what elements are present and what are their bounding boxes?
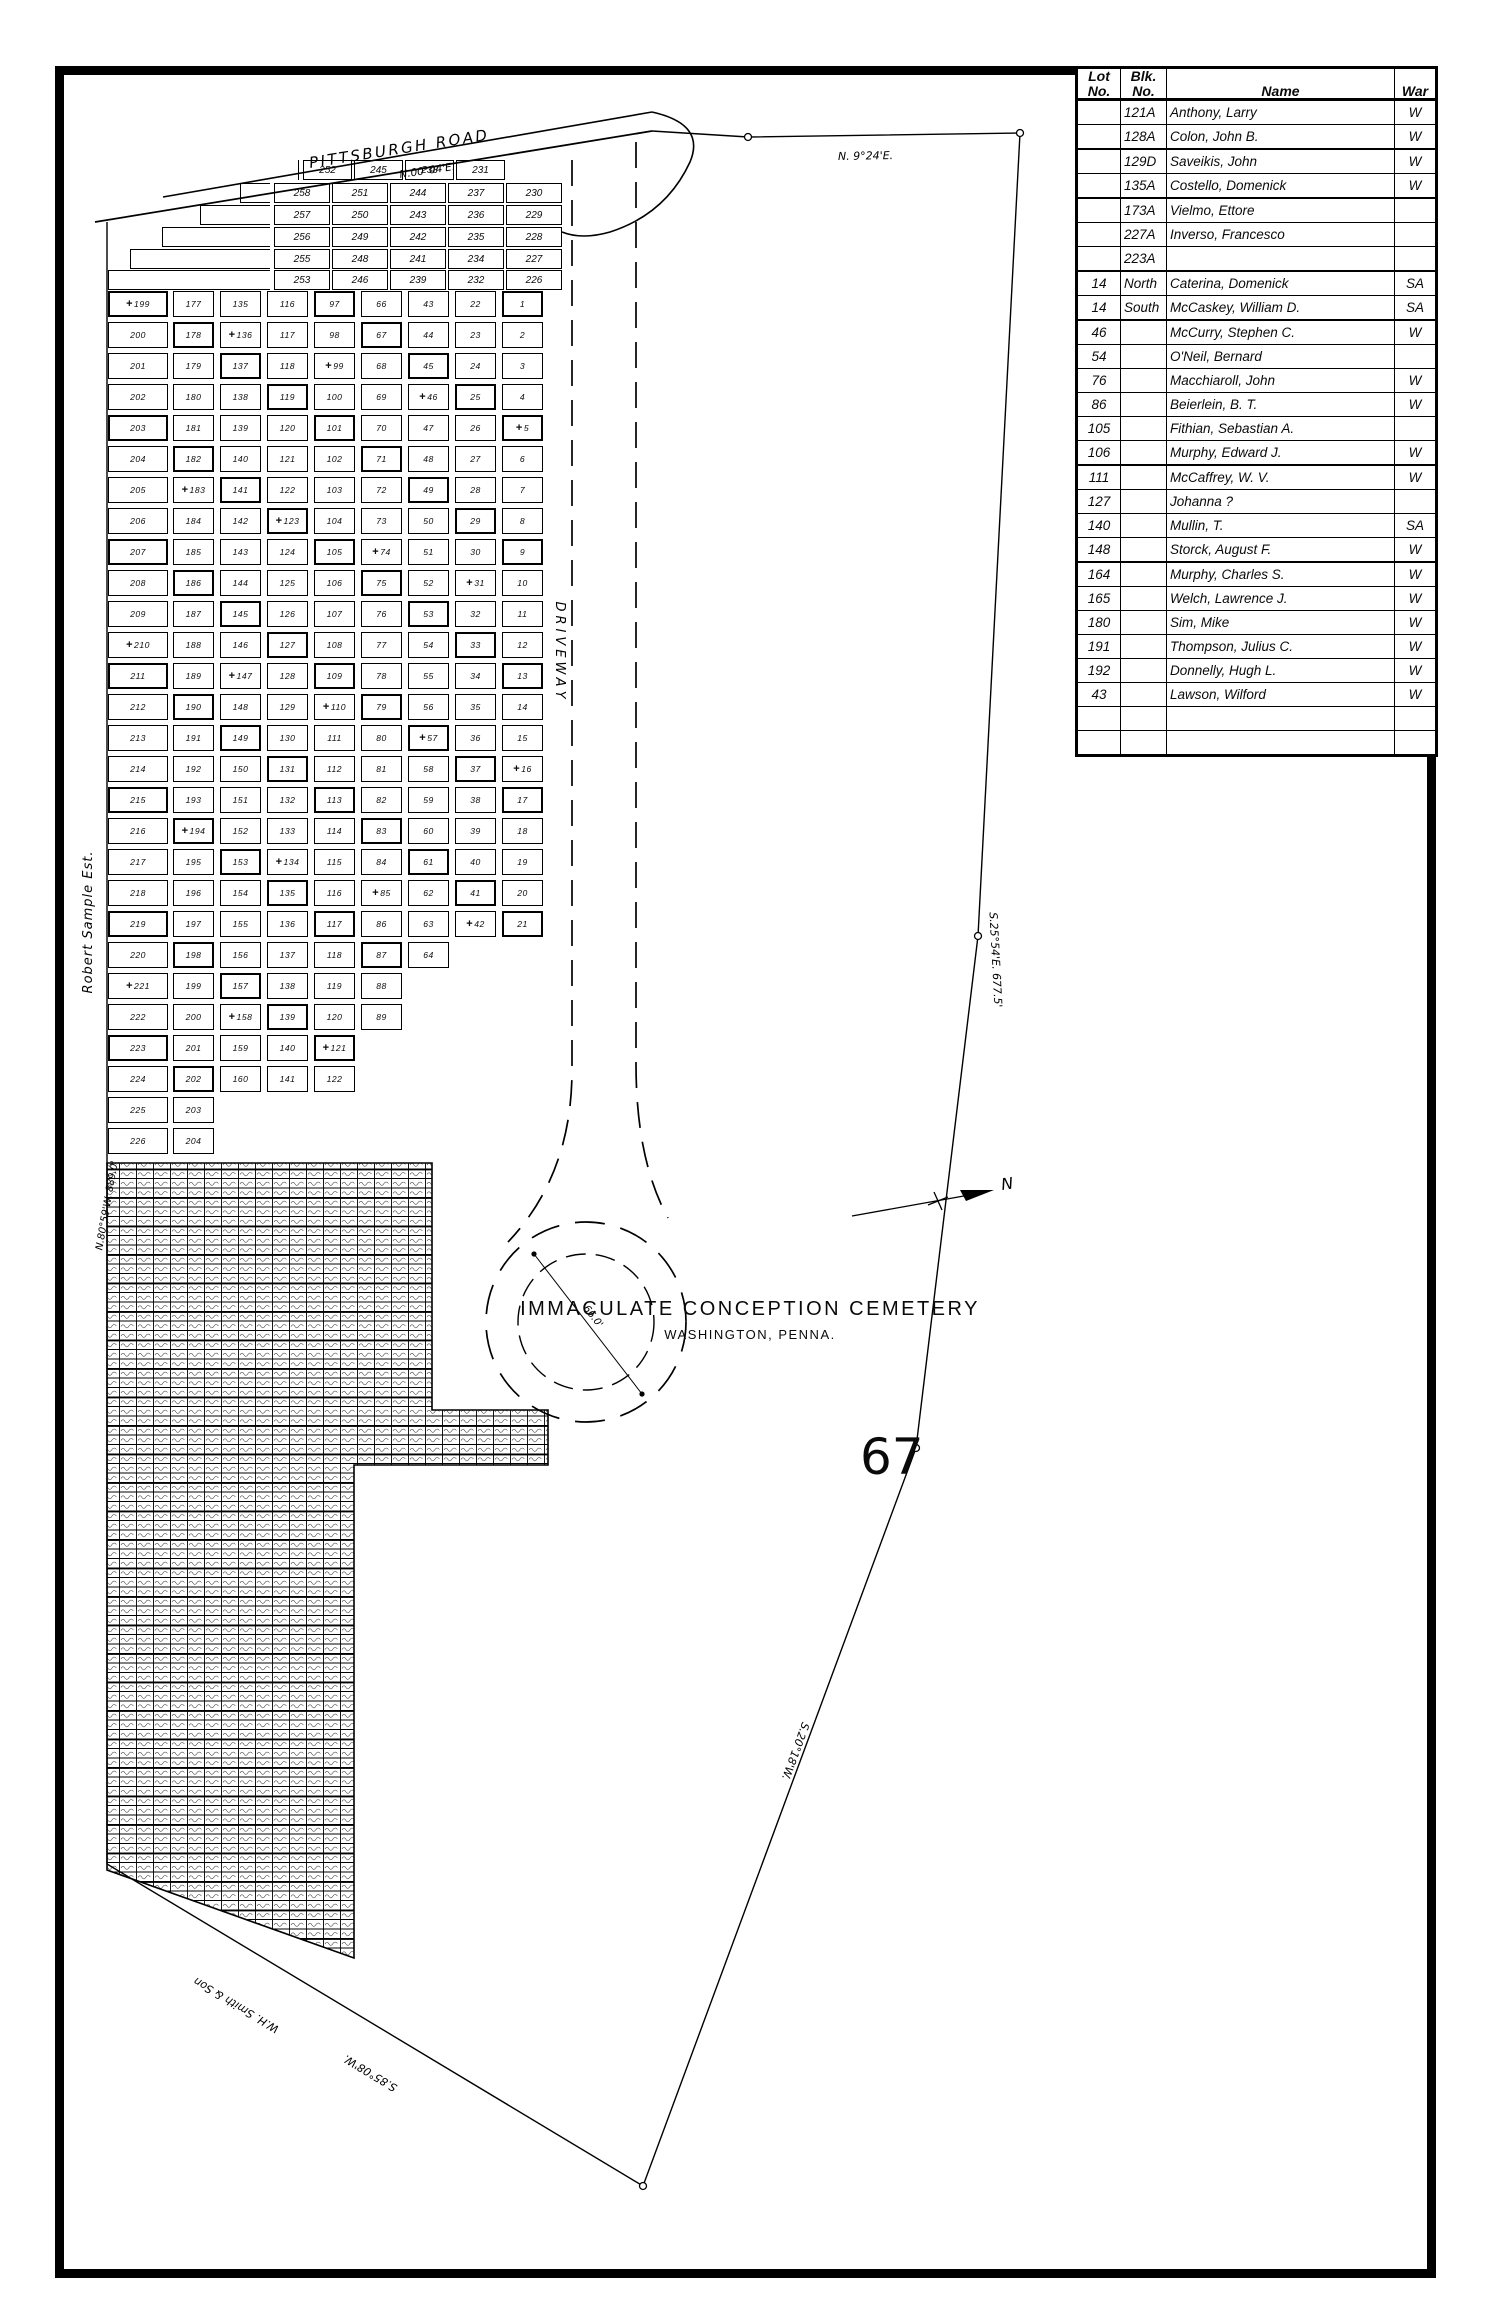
lot-number: 222 <box>130 1012 146 1022</box>
lot-number: 84 <box>376 857 387 867</box>
burial-list-table: Lot No. Blk. No. Name War 121AAnthony, L… <box>1075 66 1438 757</box>
grave-war-cell: SA <box>1395 514 1437 538</box>
grave-war-cell: W <box>1395 683 1437 707</box>
lot-cell: 113 <box>314 787 355 813</box>
lot-number: 11 <box>518 609 528 619</box>
lot-cell: 139 <box>220 415 261 441</box>
lot-cell: 116 <box>267 291 308 317</box>
grave-table-row: 14SouthMcCaskey, William D.SA <box>1077 296 1437 321</box>
lot-cell: +136 <box>220 322 261 348</box>
lot-cell: 56 <box>408 694 449 720</box>
grave-table-row: 129DSaveikis, JohnW <box>1077 149 1437 174</box>
lot-cell: 159 <box>220 1035 261 1061</box>
lot-cell: 120 <box>314 1004 355 1030</box>
lot-cell: 54 <box>408 632 449 658</box>
lot-number: 143 <box>233 547 249 557</box>
strip-lot-cell: 253 <box>274 270 330 290</box>
grave-lot-cell: 127 <box>1077 490 1121 514</box>
lot-number: 20 <box>517 888 528 898</box>
grave-lot-cell <box>1077 223 1121 247</box>
lot-number: 150 <box>233 764 249 774</box>
grave-lot-cell: 192 <box>1077 659 1121 683</box>
lot-number: 211 <box>130 671 145 681</box>
lot-cell: 124 <box>267 539 308 565</box>
lot-number: 217 <box>130 857 146 867</box>
lot-number: 151 <box>233 795 249 805</box>
grave-war-cell: W <box>1395 562 1437 587</box>
lot-cell: 80 <box>361 725 402 751</box>
lot-cell: 38 <box>455 787 496 813</box>
lot-number: 78 <box>376 671 387 681</box>
map-subtitle: WASHINGTON, PENNA. <box>450 1327 1050 1342</box>
grave-name-cell <box>1167 707 1395 731</box>
grave-war-cell: W <box>1395 587 1437 611</box>
strip-lot-cell: 256 <box>274 227 330 247</box>
lot-cell: 193 <box>173 787 214 813</box>
lot-number: 8 <box>520 516 525 526</box>
lot-cell: +31 <box>455 570 496 596</box>
lot-cell: 191 <box>173 725 214 751</box>
lot-number: 119 <box>280 392 295 402</box>
grave-cross-mark: + <box>325 360 332 372</box>
lot-cell: 48 <box>408 446 449 472</box>
lot-number: 74 <box>380 547 391 557</box>
lot-cell: 201 <box>108 353 168 379</box>
lot-number: 69 <box>376 392 387 402</box>
lot-cell: 18 <box>502 818 543 844</box>
lot-cell: 201 <box>173 1035 214 1061</box>
lot-cell: 68 <box>361 353 402 379</box>
road-lot-strip: 256249242235228 <box>162 227 562 247</box>
grave-blk-cell <box>1121 731 1167 756</box>
grave-cross-mark: + <box>323 701 330 713</box>
lot-number: 73 <box>376 516 387 526</box>
lot-number: 101 <box>327 423 343 433</box>
grave-cross-mark: + <box>372 887 379 899</box>
lot-cell: 179 <box>173 353 214 379</box>
lot-cell: 84 <box>361 849 402 875</box>
grave-lot-cell: 54 <box>1077 345 1121 369</box>
grave-cross-mark: + <box>276 515 283 527</box>
lot-cell: 37 <box>455 756 496 782</box>
dense-plot-blocks <box>107 1163 548 1958</box>
grave-war-cell: W <box>1395 441 1437 466</box>
lot-number: 60 <box>423 826 434 836</box>
lot-number: 155 <box>233 919 249 929</box>
lot-number: 159 <box>233 1043 249 1053</box>
strip-lot-cell: 238 <box>405 160 454 180</box>
lot-number: 203 <box>186 1105 202 1115</box>
lot-number: 48 <box>423 454 434 464</box>
grave-lot-cell: 106 <box>1077 441 1121 466</box>
lot-cell: 13 <box>502 663 543 689</box>
lot-number: 139 <box>280 1012 296 1022</box>
lot-number: 148 <box>233 702 249 712</box>
lot-cell: +158 <box>220 1004 261 1030</box>
lot-cell: 203 <box>108 415 168 441</box>
lot-number: 22 <box>470 299 481 309</box>
lot-number: 71 <box>376 454 387 464</box>
diameter-end-dot <box>531 1251 536 1256</box>
lot-number: 183 <box>190 485 206 495</box>
grave-lot-cell <box>1077 174 1121 199</box>
page-number: 67 <box>860 1428 980 1486</box>
lot-cell: 97 <box>314 291 355 317</box>
road-lot-strip: 258251244237230 <box>240 183 562 203</box>
grave-blk-cell <box>1121 320 1167 345</box>
lot-cell: +221 <box>108 973 168 999</box>
lot-cell: 81 <box>361 756 402 782</box>
lot-cell: 203 <box>173 1097 214 1123</box>
lot-cell: 195 <box>173 849 214 875</box>
lot-number: 109 <box>327 671 343 681</box>
lot-cell: 189 <box>173 663 214 689</box>
strip-lot-cell: 235 <box>448 227 504 247</box>
lot-number: 108 <box>327 640 343 650</box>
lot-cell: 182 <box>173 446 214 472</box>
bottom-bearing-label: S.85°08'W. <box>341 2052 400 2094</box>
lot-number: 127 <box>280 640 296 650</box>
lot-cell: 33 <box>455 632 496 658</box>
lot-cell: 100 <box>314 384 355 410</box>
west-estate-label: Robert Sample Est. <box>81 851 96 994</box>
grave-war-cell <box>1395 490 1437 514</box>
lot-cell: 130 <box>267 725 308 751</box>
lot-number: 45 <box>423 361 434 371</box>
lot-number: 1 <box>520 299 525 309</box>
grave-table-row: 106Murphy, Edward J.W <box>1077 441 1437 466</box>
lot-number: 57 <box>427 733 438 743</box>
grave-table-row <box>1077 707 1437 731</box>
lot-number: 18 <box>517 826 528 836</box>
lot-number: 67 <box>376 330 387 340</box>
grave-name-cell: Lawson, Wilford <box>1167 683 1395 707</box>
strip-lot-cell: 241 <box>390 249 446 269</box>
lot-number: 123 <box>284 516 300 526</box>
lot-cell: 190 <box>173 694 214 720</box>
lot-number: 103 <box>327 485 343 495</box>
lot-number: 179 <box>186 361 202 371</box>
lot-cell: 8 <box>502 508 543 534</box>
lot-number: 12 <box>517 640 528 650</box>
lot-cell: 150 <box>220 756 261 782</box>
lot-cell: 219 <box>108 911 168 937</box>
lot-number: 102 <box>327 454 343 464</box>
lot-cell: 112 <box>314 756 355 782</box>
lot-cell: 53 <box>408 601 449 627</box>
north-label: N <box>1000 1173 1015 1193</box>
grave-cross-mark: + <box>516 422 523 434</box>
lot-number: 204 <box>186 1136 202 1146</box>
lot-cell: 133 <box>267 818 308 844</box>
grave-blk-cell <box>1121 659 1167 683</box>
lot-number: 186 <box>186 578 202 588</box>
grave-table-row: 121AAnthony, LarryW <box>1077 100 1437 125</box>
strip-lot-cell: 246 <box>332 270 388 290</box>
lot-cell: 204 <box>173 1128 214 1154</box>
lot-number: 121 <box>280 454 296 464</box>
lot-number: 79 <box>376 702 387 712</box>
lot-number: 187 <box>186 609 202 619</box>
lot-number: 225 <box>130 1105 146 1115</box>
lot-cell: 200 <box>108 322 168 348</box>
lot-number: 51 <box>423 547 434 557</box>
lot-cell: 143 <box>220 539 261 565</box>
grave-blk-cell <box>1121 562 1167 587</box>
lot-cell: 218 <box>108 880 168 906</box>
grave-war-cell <box>1395 223 1437 247</box>
grave-name-cell: Saveikis, John <box>1167 149 1395 174</box>
lot-cell: +183 <box>173 477 214 503</box>
lot-number: 114 <box>327 826 342 836</box>
grave-war-cell: W <box>1395 465 1437 490</box>
lot-cell: 52 <box>408 570 449 596</box>
lot-cell: 103 <box>314 477 355 503</box>
lot-cell: 69 <box>361 384 402 410</box>
lot-cell: +5 <box>502 415 543 441</box>
lot-cell: 132 <box>267 787 308 813</box>
lot-number: 145 <box>233 609 249 619</box>
grave-name-cell <box>1167 247 1395 272</box>
lot-number: 66 <box>376 299 387 309</box>
lot-number: 64 <box>423 950 434 960</box>
lot-number: 16 <box>521 764 532 774</box>
lot-cell: 120 <box>267 415 308 441</box>
grave-lot-cell: 14 <box>1077 271 1121 296</box>
grave-table-row: 165Welch, Lawrence J.W <box>1077 587 1437 611</box>
lot-number: 138 <box>280 981 296 991</box>
lot-cell: 126 <box>267 601 308 627</box>
lot-number: 178 <box>186 330 202 340</box>
grave-blk-cell: North <box>1121 271 1167 296</box>
lot-cell: 224 <box>108 1066 168 1092</box>
lot-cell: 202 <box>108 384 168 410</box>
lot-cell: 39 <box>455 818 496 844</box>
lot-cell: +99 <box>314 353 355 379</box>
grave-cross-mark: + <box>229 1011 236 1023</box>
grave-blk-cell: 135A <box>1121 174 1167 199</box>
grave-blk-cell <box>1121 441 1167 466</box>
lot-number: 52 <box>423 578 434 588</box>
strip-lot-cell: 258 <box>274 183 330 203</box>
strip-lot-cell: 242 <box>390 227 446 247</box>
lot-number: 200 <box>130 330 146 340</box>
lot-cell: 101 <box>314 415 355 441</box>
lot-cell: 196 <box>173 880 214 906</box>
lot-cell: 23 <box>455 322 496 348</box>
grave-name-cell: Donnelly, Hugh L. <box>1167 659 1395 683</box>
road-lot-strip: 252245238231 <box>298 160 505 180</box>
grave-blk-cell: South <box>1121 296 1167 321</box>
grave-cross-mark: + <box>276 856 283 868</box>
lot-cell: 198 <box>173 942 214 968</box>
grave-cross-mark: + <box>126 298 133 310</box>
lot-number: 62 <box>423 888 434 898</box>
lot-cell: 76 <box>361 601 402 627</box>
lot-number: 3 <box>520 361 525 371</box>
grave-name-cell: Anthony, Larry <box>1167 100 1395 125</box>
grave-name-cell <box>1167 731 1395 756</box>
lot-cell: 3 <box>502 353 543 379</box>
lot-cell: 115 <box>314 849 355 875</box>
grave-name-cell: Murphy, Charles S. <box>1167 562 1395 587</box>
lot-cell: +42 <box>455 911 496 937</box>
lot-cell: 28 <box>455 477 496 503</box>
lot-number: 76 <box>376 609 387 619</box>
boundary-corner-markers <box>640 130 1024 2190</box>
lot-number: 30 <box>470 547 481 557</box>
lot-number: 117 <box>280 330 295 340</box>
north-arrow <box>852 1190 994 1216</box>
lot-cell: 34 <box>455 663 496 689</box>
strip-lot-cell: 229 <box>506 205 562 225</box>
lot-number: 83 <box>376 826 387 836</box>
lot-number: 200 <box>186 1012 202 1022</box>
lot-number: 53 <box>423 609 434 619</box>
lot-number: 216 <box>130 826 146 836</box>
top-bearing-label: N. 9°24'E. <box>838 149 893 163</box>
lot-cell: 55 <box>408 663 449 689</box>
grave-war-cell: W <box>1395 149 1437 174</box>
lot-number: 188 <box>186 640 202 650</box>
lot-cell: 122 <box>314 1066 355 1092</box>
lot-cell: 209 <box>108 601 168 627</box>
lot-number: 29 <box>470 516 481 526</box>
strip-lot-cell: 232 <box>448 270 504 290</box>
lot-number: 199 <box>186 981 202 991</box>
grave-blk-cell: 129D <box>1121 149 1167 174</box>
grave-table-row: 127Johanna ? <box>1077 490 1437 514</box>
lot-cell: 1 <box>502 291 543 317</box>
lot-number: 137 <box>233 361 249 371</box>
lot-cell: +134 <box>267 849 308 875</box>
lot-cell: 140 <box>267 1035 308 1061</box>
lot-cell: 78 <box>361 663 402 689</box>
lot-cell: 32 <box>455 601 496 627</box>
lot-cell: 62 <box>408 880 449 906</box>
lot-cell: 6 <box>502 446 543 472</box>
lot-number: 41 <box>470 888 481 898</box>
lot-number: 120 <box>327 1012 343 1022</box>
lot-number: 55 <box>423 671 434 681</box>
grave-cross-mark: + <box>323 1042 330 1054</box>
lot-number: 35 <box>470 702 481 712</box>
grave-lot-cell <box>1077 198 1121 223</box>
lot-cell: 140 <box>220 446 261 472</box>
lot-cell: 127 <box>267 632 308 658</box>
lot-number: 115 <box>327 857 342 867</box>
lot-number: 31 <box>474 578 485 588</box>
grave-blk-cell: 223A <box>1121 247 1167 272</box>
lot-number: 213 <box>130 733 146 743</box>
grave-lot-cell: 43 <box>1077 683 1121 707</box>
lot-cell: 60 <box>408 818 449 844</box>
grave-war-cell <box>1395 345 1437 369</box>
lot-cell: 4 <box>502 384 543 410</box>
lot-number: 136 <box>280 919 296 929</box>
lot-number: 119 <box>327 981 342 991</box>
lot-cell: 122 <box>267 477 308 503</box>
lot-number: 116 <box>327 888 342 898</box>
grave-name-cell: Storck, August F. <box>1167 538 1395 563</box>
grave-blk-cell <box>1121 538 1167 563</box>
lot-number: 82 <box>376 795 387 805</box>
lot-cell: 79 <box>361 694 402 720</box>
lot-cell: 154 <box>220 880 261 906</box>
grave-table-row: 227AInverso, Francesco <box>1077 223 1437 247</box>
lot-number: 160 <box>233 1074 249 1084</box>
lot-number: 97 <box>329 299 340 309</box>
lot-cell: 197 <box>173 911 214 937</box>
lot-number: 136 <box>237 330 253 340</box>
lot-cell: 181 <box>173 415 214 441</box>
grave-blk-cell <box>1121 514 1167 538</box>
lot-cell: 155 <box>220 911 261 937</box>
lot-cell: 125 <box>267 570 308 596</box>
grave-blk-cell <box>1121 393 1167 417</box>
lot-cell: 160 <box>220 1066 261 1092</box>
lot-cell: +121 <box>314 1035 355 1061</box>
lot-number: 40 <box>470 857 481 867</box>
lot-cell: 226 <box>108 1128 168 1154</box>
grave-war-cell: W <box>1395 174 1437 199</box>
strip-lot-cell: 255 <box>274 249 330 269</box>
lot-number: 70 <box>376 423 387 433</box>
grave-name-cell: Thompson, Julius C. <box>1167 635 1395 659</box>
strip-lot-cell: 251 <box>332 183 388 203</box>
burial-table-header-row: Lot No. Blk. No. Name War <box>1077 68 1437 100</box>
lot-number: 112 <box>327 764 342 774</box>
lot-cell: 131 <box>267 756 308 782</box>
grave-war-cell: W <box>1395 369 1437 393</box>
lot-cell: 9 <box>502 539 543 565</box>
lot-cell: 116 <box>314 880 355 906</box>
lot-cell: 51 <box>408 539 449 565</box>
lot-number: 212 <box>130 702 146 712</box>
grave-table-row: 148Storck, August F.W <box>1077 538 1437 563</box>
col-header-lot-no: Lot No. <box>1077 68 1121 100</box>
lot-number: 194 <box>190 826 206 836</box>
lot-number: 226 <box>130 1136 146 1146</box>
lot-number: 17 <box>517 795 528 805</box>
lot-cell: +210 <box>108 632 168 658</box>
lot-cell: 58 <box>408 756 449 782</box>
lot-cell: 35 <box>455 694 496 720</box>
lot-cell: 200 <box>173 1004 214 1030</box>
lot-cell: 11 <box>502 601 543 627</box>
grave-war-cell: W <box>1395 659 1437 683</box>
lot-cell: 215 <box>108 787 168 813</box>
lot-cell: 136 <box>267 911 308 937</box>
lot-cell: 119 <box>267 384 308 410</box>
grave-lot-cell: 191 <box>1077 635 1121 659</box>
lot-number: 197 <box>186 919 202 929</box>
grave-cross-mark: + <box>419 732 426 744</box>
grave-table-row <box>1077 731 1437 756</box>
grave-blk-cell <box>1121 611 1167 635</box>
lot-cell: +16 <box>502 756 543 782</box>
lot-number: 126 <box>280 609 296 619</box>
grave-table-row: 173AVielmo, Ettore <box>1077 198 1437 223</box>
lot-number: 27 <box>470 454 481 464</box>
lot-cell: 208 <box>108 570 168 596</box>
lot-cell: 129 <box>267 694 308 720</box>
lot-number: 54 <box>423 640 434 650</box>
lot-number: 152 <box>233 826 249 836</box>
road-lot-strip: 253246239232226 <box>108 270 562 290</box>
grave-lot-cell <box>1077 100 1121 125</box>
lot-cell: 19 <box>502 849 543 875</box>
